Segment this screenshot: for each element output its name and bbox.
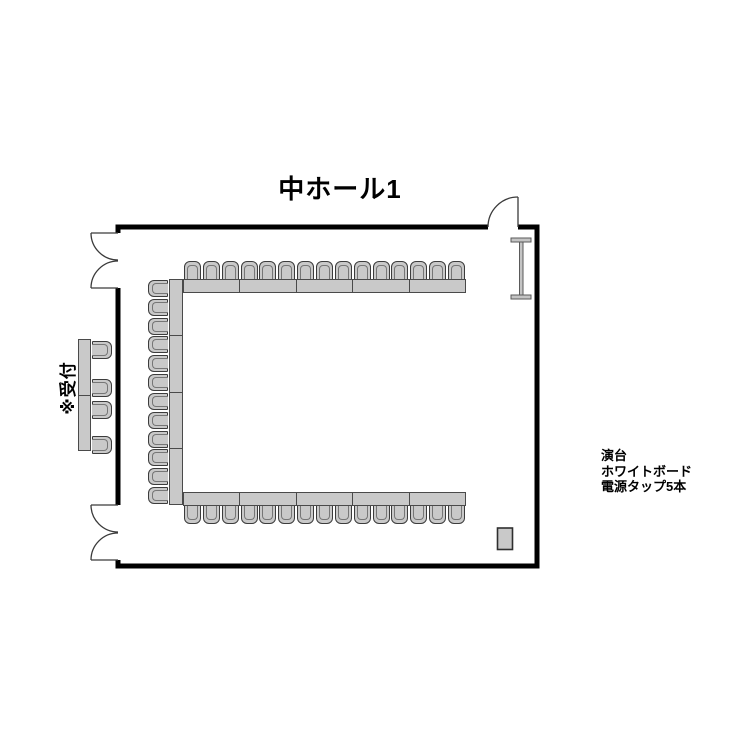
chair — [92, 401, 112, 419]
chair-seat — [152, 321, 168, 332]
chair — [184, 261, 201, 280]
table-segment — [169, 279, 183, 336]
chair — [148, 336, 168, 353]
whiteboard-top-cap — [511, 238, 531, 242]
door-top-right — [488, 197, 518, 227]
chair — [241, 505, 258, 524]
chair-seat — [432, 505, 443, 520]
table-segment — [169, 448, 183, 505]
chair — [203, 261, 220, 280]
chair — [222, 261, 239, 280]
table-segment — [169, 392, 183, 449]
chair — [148, 431, 168, 448]
chair-seat — [152, 452, 168, 463]
chair — [278, 261, 295, 280]
chair-seat — [152, 434, 168, 445]
door-swing-arc — [91, 233, 118, 260]
chair — [92, 379, 112, 397]
table-segment — [296, 492, 353, 506]
chair — [391, 505, 408, 524]
chair — [148, 318, 168, 335]
equipment-note-whiteboard: ホワイトボード — [601, 464, 741, 480]
table-segment — [169, 335, 183, 392]
chair — [92, 341, 112, 359]
table-left — [169, 279, 183, 505]
equipment-notes: 演台 ホワイトボード 電源タップ5本 — [601, 448, 741, 495]
chair — [335, 505, 352, 524]
chair — [354, 505, 371, 524]
chair-seat — [152, 283, 168, 294]
table-reception — [78, 339, 91, 451]
chair-seat — [262, 505, 273, 520]
chair-seat — [92, 382, 108, 394]
door-swing-arc — [488, 197, 518, 227]
chair — [148, 468, 168, 485]
chair-seat — [187, 505, 198, 520]
table-segment — [78, 395, 91, 452]
chair-seat — [187, 265, 198, 280]
chair — [448, 505, 465, 524]
table-segment — [183, 279, 240, 293]
reception-label: ※受付 — [54, 338, 76, 438]
walls-and-doors-layer — [0, 0, 750, 750]
table-segment — [352, 279, 409, 293]
table-top — [183, 279, 466, 293]
table-segment — [239, 279, 296, 293]
chair-seat — [432, 265, 443, 280]
chair-seat — [413, 505, 424, 520]
chair-seat — [357, 265, 368, 280]
table-segment — [352, 492, 409, 506]
chair-seat — [338, 265, 349, 280]
chair — [148, 374, 168, 391]
chair-seat — [92, 404, 108, 416]
chair-seat — [300, 505, 311, 520]
chair — [429, 505, 446, 524]
chair — [148, 280, 168, 297]
table-segment — [409, 492, 466, 506]
chair-seat — [376, 505, 387, 520]
chair — [259, 505, 276, 524]
equipment-note-powerstrip: 電源タップ5本 — [601, 479, 741, 495]
podium-marker — [498, 528, 513, 550]
wall-top-left-segment — [118, 227, 488, 233]
chair — [354, 261, 371, 280]
chair-seat — [152, 415, 168, 426]
chair — [203, 505, 220, 524]
table-bottom — [183, 492, 466, 506]
chair-seat — [281, 265, 292, 280]
whiteboard-stem — [520, 242, 524, 295]
chair — [316, 505, 333, 524]
chair — [92, 436, 112, 454]
chair — [410, 505, 427, 524]
table-segment — [409, 279, 466, 293]
chair-seat — [206, 505, 217, 520]
chair-seat — [262, 265, 273, 280]
chair — [429, 261, 446, 280]
chair-seat — [413, 265, 424, 280]
chair-seat — [152, 377, 168, 388]
chair — [148, 487, 168, 504]
chair — [148, 449, 168, 466]
whiteboard-bottom-cap — [511, 295, 531, 299]
door-top-left — [91, 233, 118, 288]
door-swing-arc — [91, 533, 118, 560]
chair-seat — [92, 344, 108, 356]
chair — [448, 261, 465, 280]
chair-seat — [300, 265, 311, 280]
chair — [222, 505, 239, 524]
chair — [373, 505, 390, 524]
chair-seat — [152, 490, 168, 501]
chair — [148, 393, 168, 410]
chair-seat — [451, 505, 462, 520]
whiteboard-symbol — [511, 238, 531, 299]
chair — [297, 505, 314, 524]
table-segment — [296, 279, 353, 293]
chair — [278, 505, 295, 524]
chair-seat — [319, 505, 330, 520]
door-swing-arc — [91, 261, 118, 288]
chair-seat — [244, 265, 255, 280]
chair-seat — [206, 265, 217, 280]
chair — [148, 355, 168, 372]
chair — [410, 261, 427, 280]
chair-seat — [394, 505, 405, 520]
equipment-note-podium: 演台 — [601, 448, 741, 464]
chair — [391, 261, 408, 280]
chair-seat — [357, 505, 368, 520]
chair — [241, 261, 258, 280]
chair-seat — [152, 302, 168, 313]
chair — [297, 261, 314, 280]
chair-seat — [92, 439, 108, 451]
door-swing-arc — [91, 505, 118, 532]
chair-seat — [225, 505, 236, 520]
chair — [335, 261, 352, 280]
chair-seat — [394, 265, 405, 280]
chair — [148, 299, 168, 316]
chair — [184, 505, 201, 524]
chair-seat — [244, 505, 255, 520]
chair-seat — [451, 265, 462, 280]
chair-seat — [376, 265, 387, 280]
chair — [316, 261, 333, 280]
floor-plan: 中ホール1 ※受付 演台 ホワイトボード 電源タップ5本 — [0, 0, 750, 750]
chair-seat — [152, 339, 168, 350]
chair — [373, 261, 390, 280]
chair — [148, 412, 168, 429]
chair-seat — [338, 505, 349, 520]
room-title: 中ホール1 — [190, 169, 490, 203]
chair-seat — [225, 265, 236, 280]
table-segment — [183, 492, 240, 506]
chair — [259, 261, 276, 280]
chair-seat — [152, 358, 168, 369]
table-segment — [239, 492, 296, 506]
chair-seat — [319, 265, 330, 280]
chair-seat — [281, 505, 292, 520]
chair-seat — [152, 396, 168, 407]
chair-seat — [152, 471, 168, 482]
table-segment — [78, 339, 91, 396]
door-bottom-left — [91, 505, 118, 560]
